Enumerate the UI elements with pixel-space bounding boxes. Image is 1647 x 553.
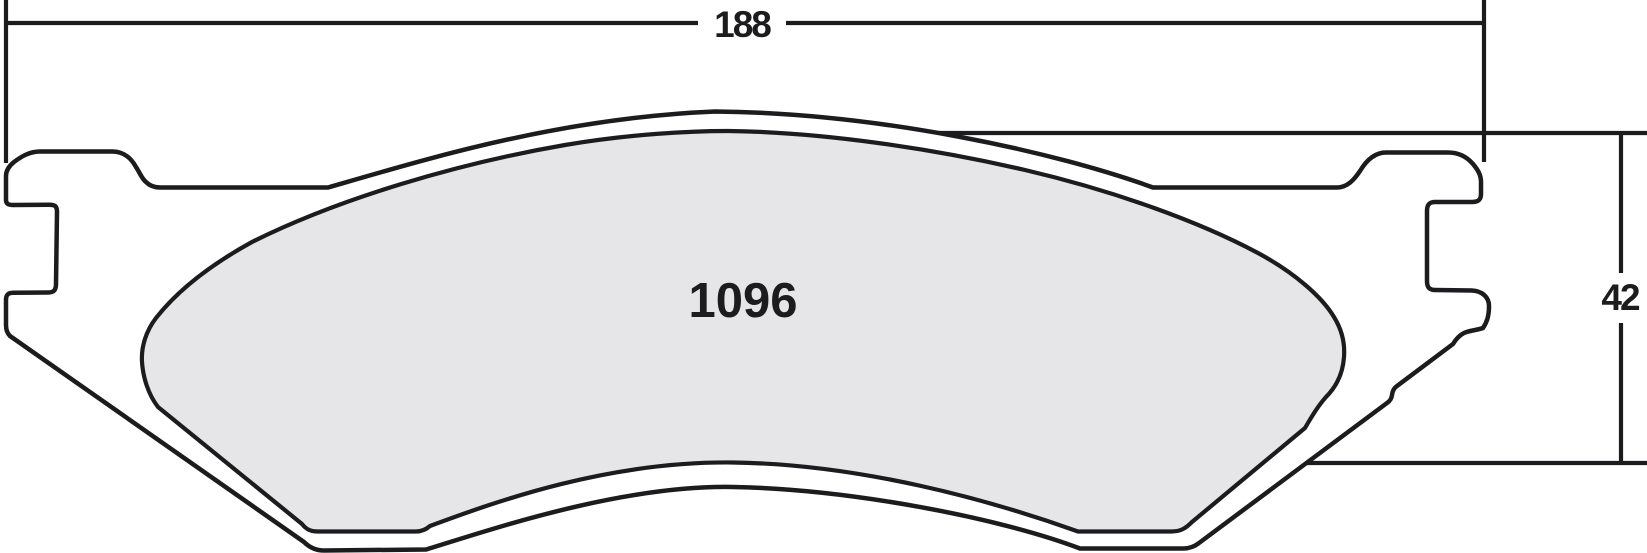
height-dimension-label: 42 <box>1601 277 1640 318</box>
brake-pad-drawing: 188 42 1096 <box>0 0 1647 553</box>
part-number-label: 1096 <box>688 274 797 328</box>
drawing-svg: 188 42 1096 <box>0 0 1647 553</box>
width-dimension-label: 188 <box>714 4 771 45</box>
